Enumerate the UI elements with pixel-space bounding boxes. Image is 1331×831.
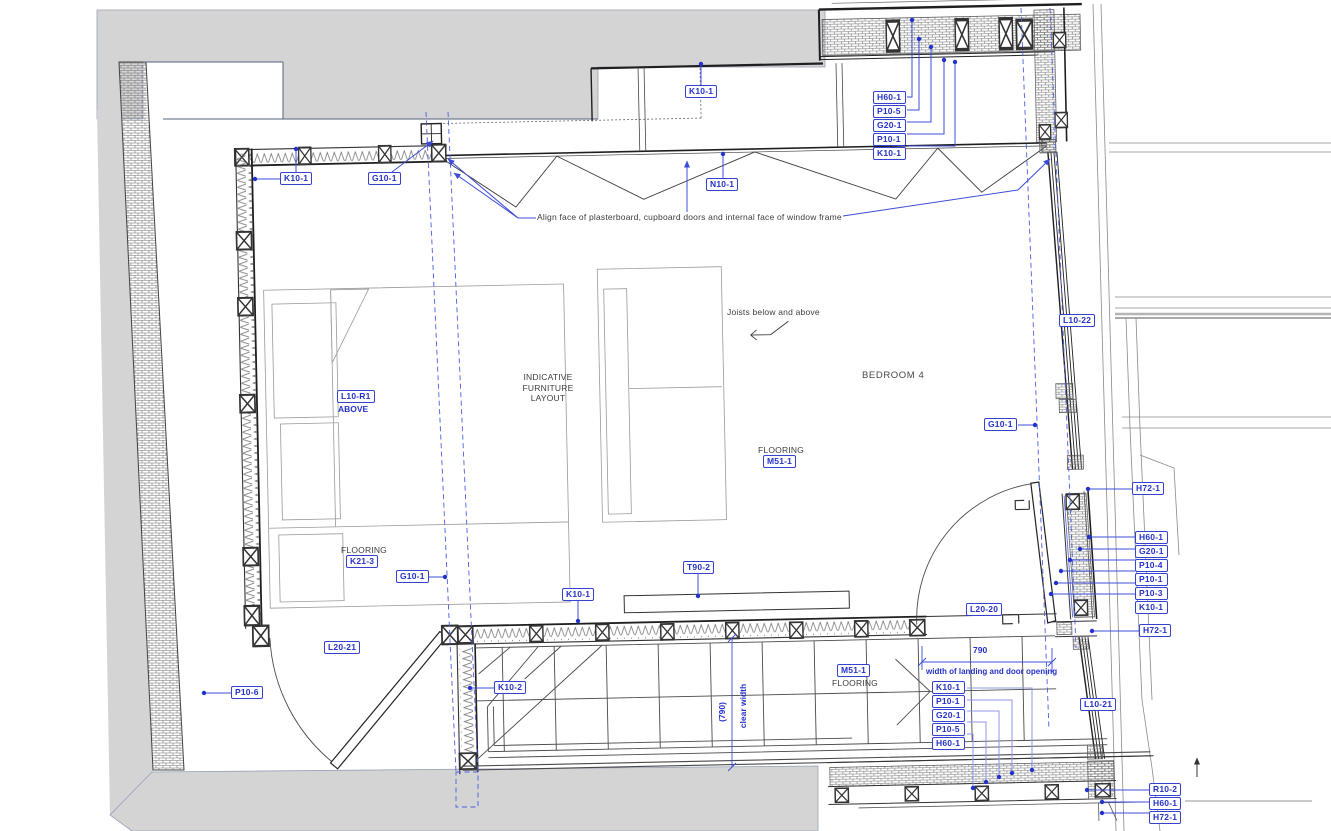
ref-tag-h60-1-top: H60-1 (873, 91, 906, 104)
corner-post (421, 124, 441, 144)
above-label: ABOVE (338, 404, 368, 414)
ref-tag-h60-1-right: H60-1 (1135, 531, 1168, 544)
ref-tag-g20-1-bottom: G20-1 (932, 709, 965, 722)
flooring-label-left: FLOORING (341, 545, 387, 555)
ref-tag-k10-1-stairs: K10-1 (562, 588, 594, 601)
ref-tag-h60-1-corner: H60-1 (1149, 797, 1181, 810)
ref-stack-top-right: H60-1 P10-5 G20-1 P10-1 K10-1 (873, 91, 906, 160)
wall-stairwell-left (457, 644, 478, 774)
ref-tag-p10-1-top: P10-1 (873, 133, 906, 146)
ref-tag-t90-2: T90-2 (683, 561, 714, 574)
ref-tag-m51-1-stairs: M51-1 (837, 664, 870, 677)
ref-tag-p10-4-right: P10-4 (1135, 559, 1168, 572)
floor-plan-page: Align face of plasterboard, cupboard doo… (0, 0, 1331, 831)
ref-tag-g10-1-lower: G10-1 (396, 570, 429, 583)
ref-tag-h60-1-bottom: H60-1 (932, 737, 965, 750)
ref-tag-l20-21: L20-21 (324, 641, 360, 654)
dimensions (728, 634, 1056, 771)
landing-dim-value: 790 (973, 645, 987, 655)
ref-tag-h72-1-corner: H72-1 (1149, 811, 1181, 824)
furniture (263, 267, 728, 609)
radiator (624, 591, 849, 613)
floor-plan-drawing (0, 0, 1331, 831)
joists-note: Joists below and above (727, 307, 820, 317)
ref-stack-corner: R10-2 H60-1 H72-1 (1149, 783, 1181, 824)
wall-bottom-right (828, 756, 1155, 827)
flooring-label-stairs: FLOORING (832, 678, 878, 688)
ref-tag-p10-1-bottom: P10-1 (932, 695, 965, 708)
wall-top (235, 145, 447, 166)
ref-tag-l10-r1: L10-R1 (337, 390, 375, 403)
annotation-leaders (202, 18, 1150, 815)
ref-tag-g20-1-top: G20-1 (873, 119, 906, 132)
room-name: BEDROOM 4 (862, 370, 924, 381)
ref-tag-p10-5-top: P10-5 (873, 105, 906, 118)
ref-tag-l10-21: L10-21 (1080, 698, 1116, 711)
ref-stack-right: H60-1 G20-1 P10-4 P10-1 P10-3 K10-1 (1135, 531, 1168, 614)
ref-tag-k10-1-right: K10-1 (1135, 601, 1168, 614)
ref-tag-g20-1-right: G20-1 (1135, 545, 1168, 558)
landing-dim-label: width of landing and door opening (926, 667, 1057, 676)
ref-tag-p10-1-right: P10-1 (1135, 573, 1168, 586)
window-wall-upper (1040, 139, 1084, 470)
ref-tag-k21-3: K21-3 (346, 555, 378, 568)
ref-tag-l10-22: L10-22 (1059, 314, 1095, 327)
indicative-line3: LAYOUT (505, 393, 591, 404)
ref-tag-h72-1-upper: H72-1 (1132, 482, 1164, 495)
ref-tag-k10-2: K10-2 (494, 681, 526, 694)
wall-left (235, 148, 262, 628)
ref-tag-n10-1: N10-1 (706, 178, 738, 191)
room-structure (232, 0, 1155, 831)
ref-tag-k10-1-bottom: K10-1 (932, 681, 965, 694)
align-note: Align face of plasterboard, cupboard doo… (537, 212, 842, 222)
ref-tag-k10-1-left-wall: K10-1 (280, 172, 312, 185)
ref-tag-m51-1-room: M51-1 (763, 455, 796, 468)
ref-tag-k10-1-cupboard: K10-1 (685, 85, 717, 98)
clear-width-label: clear width (738, 684, 748, 728)
ref-tag-l20-20: L20-20 (966, 603, 1002, 616)
ref-tag-g10-1-right: G10-1 (984, 418, 1017, 431)
ref-tag-p10-5-bottom: P10-5 (932, 723, 965, 736)
wall-right-door-section (1050, 491, 1097, 637)
ref-stack-bottom: K10-1 P10-1 G20-1 P10-5 H60-1 (932, 681, 965, 750)
ref-tag-r10-2-corner: R10-2 (1149, 783, 1181, 796)
clear-width-value: (790) (717, 702, 727, 722)
ref-tag-g10-1-top: G10-1 (368, 172, 401, 185)
indicative-line2: FURNITURE (505, 383, 591, 394)
ref-tag-h72-1-lower: H72-1 (1139, 624, 1171, 637)
ref-tag-p10-6: P10-6 (231, 686, 263, 699)
flooring-label-room: FLOORING (758, 445, 804, 455)
wall-bottom (457, 616, 927, 645)
ref-tag-k10-1-top: K10-1 (873, 147, 906, 160)
joist-symbol (750, 321, 788, 340)
indicative-line1: INDICATIVE (505, 372, 591, 383)
wall-top-right (819, 0, 1085, 157)
indicative-furniture-note: INDICATIVE FURNITURE LAYOUT (505, 372, 591, 404)
ref-tag-p10-3-right: P10-3 (1135, 587, 1168, 600)
adjacent-structure (1093, 4, 1331, 831)
stairs (460, 634, 1150, 770)
